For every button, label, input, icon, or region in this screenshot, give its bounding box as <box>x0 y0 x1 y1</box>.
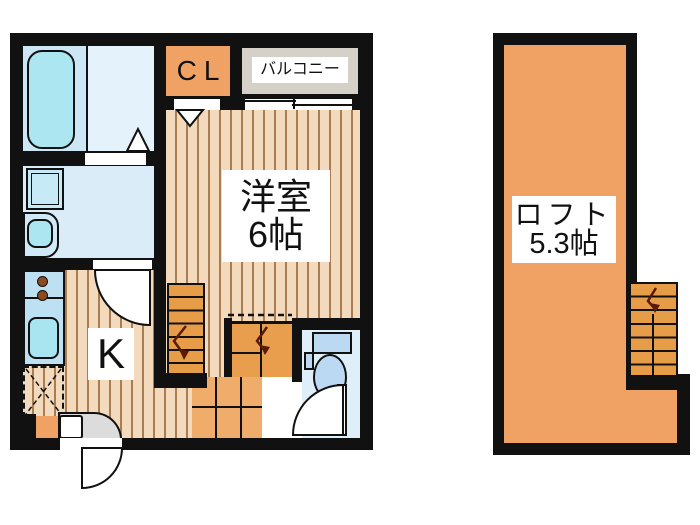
bathroom-door-icon <box>127 129 149 151</box>
stair-arrow-hall-head <box>260 345 270 355</box>
stair-arrow-first-floor-head <box>179 349 189 360</box>
closet-door-icon <box>177 110 203 126</box>
lineart-overlay <box>0 0 700 525</box>
stair-arrow-loft-head <box>650 303 660 313</box>
toilet-door-swing <box>293 385 343 435</box>
washroom-door-swing <box>95 270 150 325</box>
entrance-door-swing <box>82 448 122 488</box>
laundry-space-cross <box>26 369 61 414</box>
floor-plan: CL バルコニー <box>0 0 700 525</box>
